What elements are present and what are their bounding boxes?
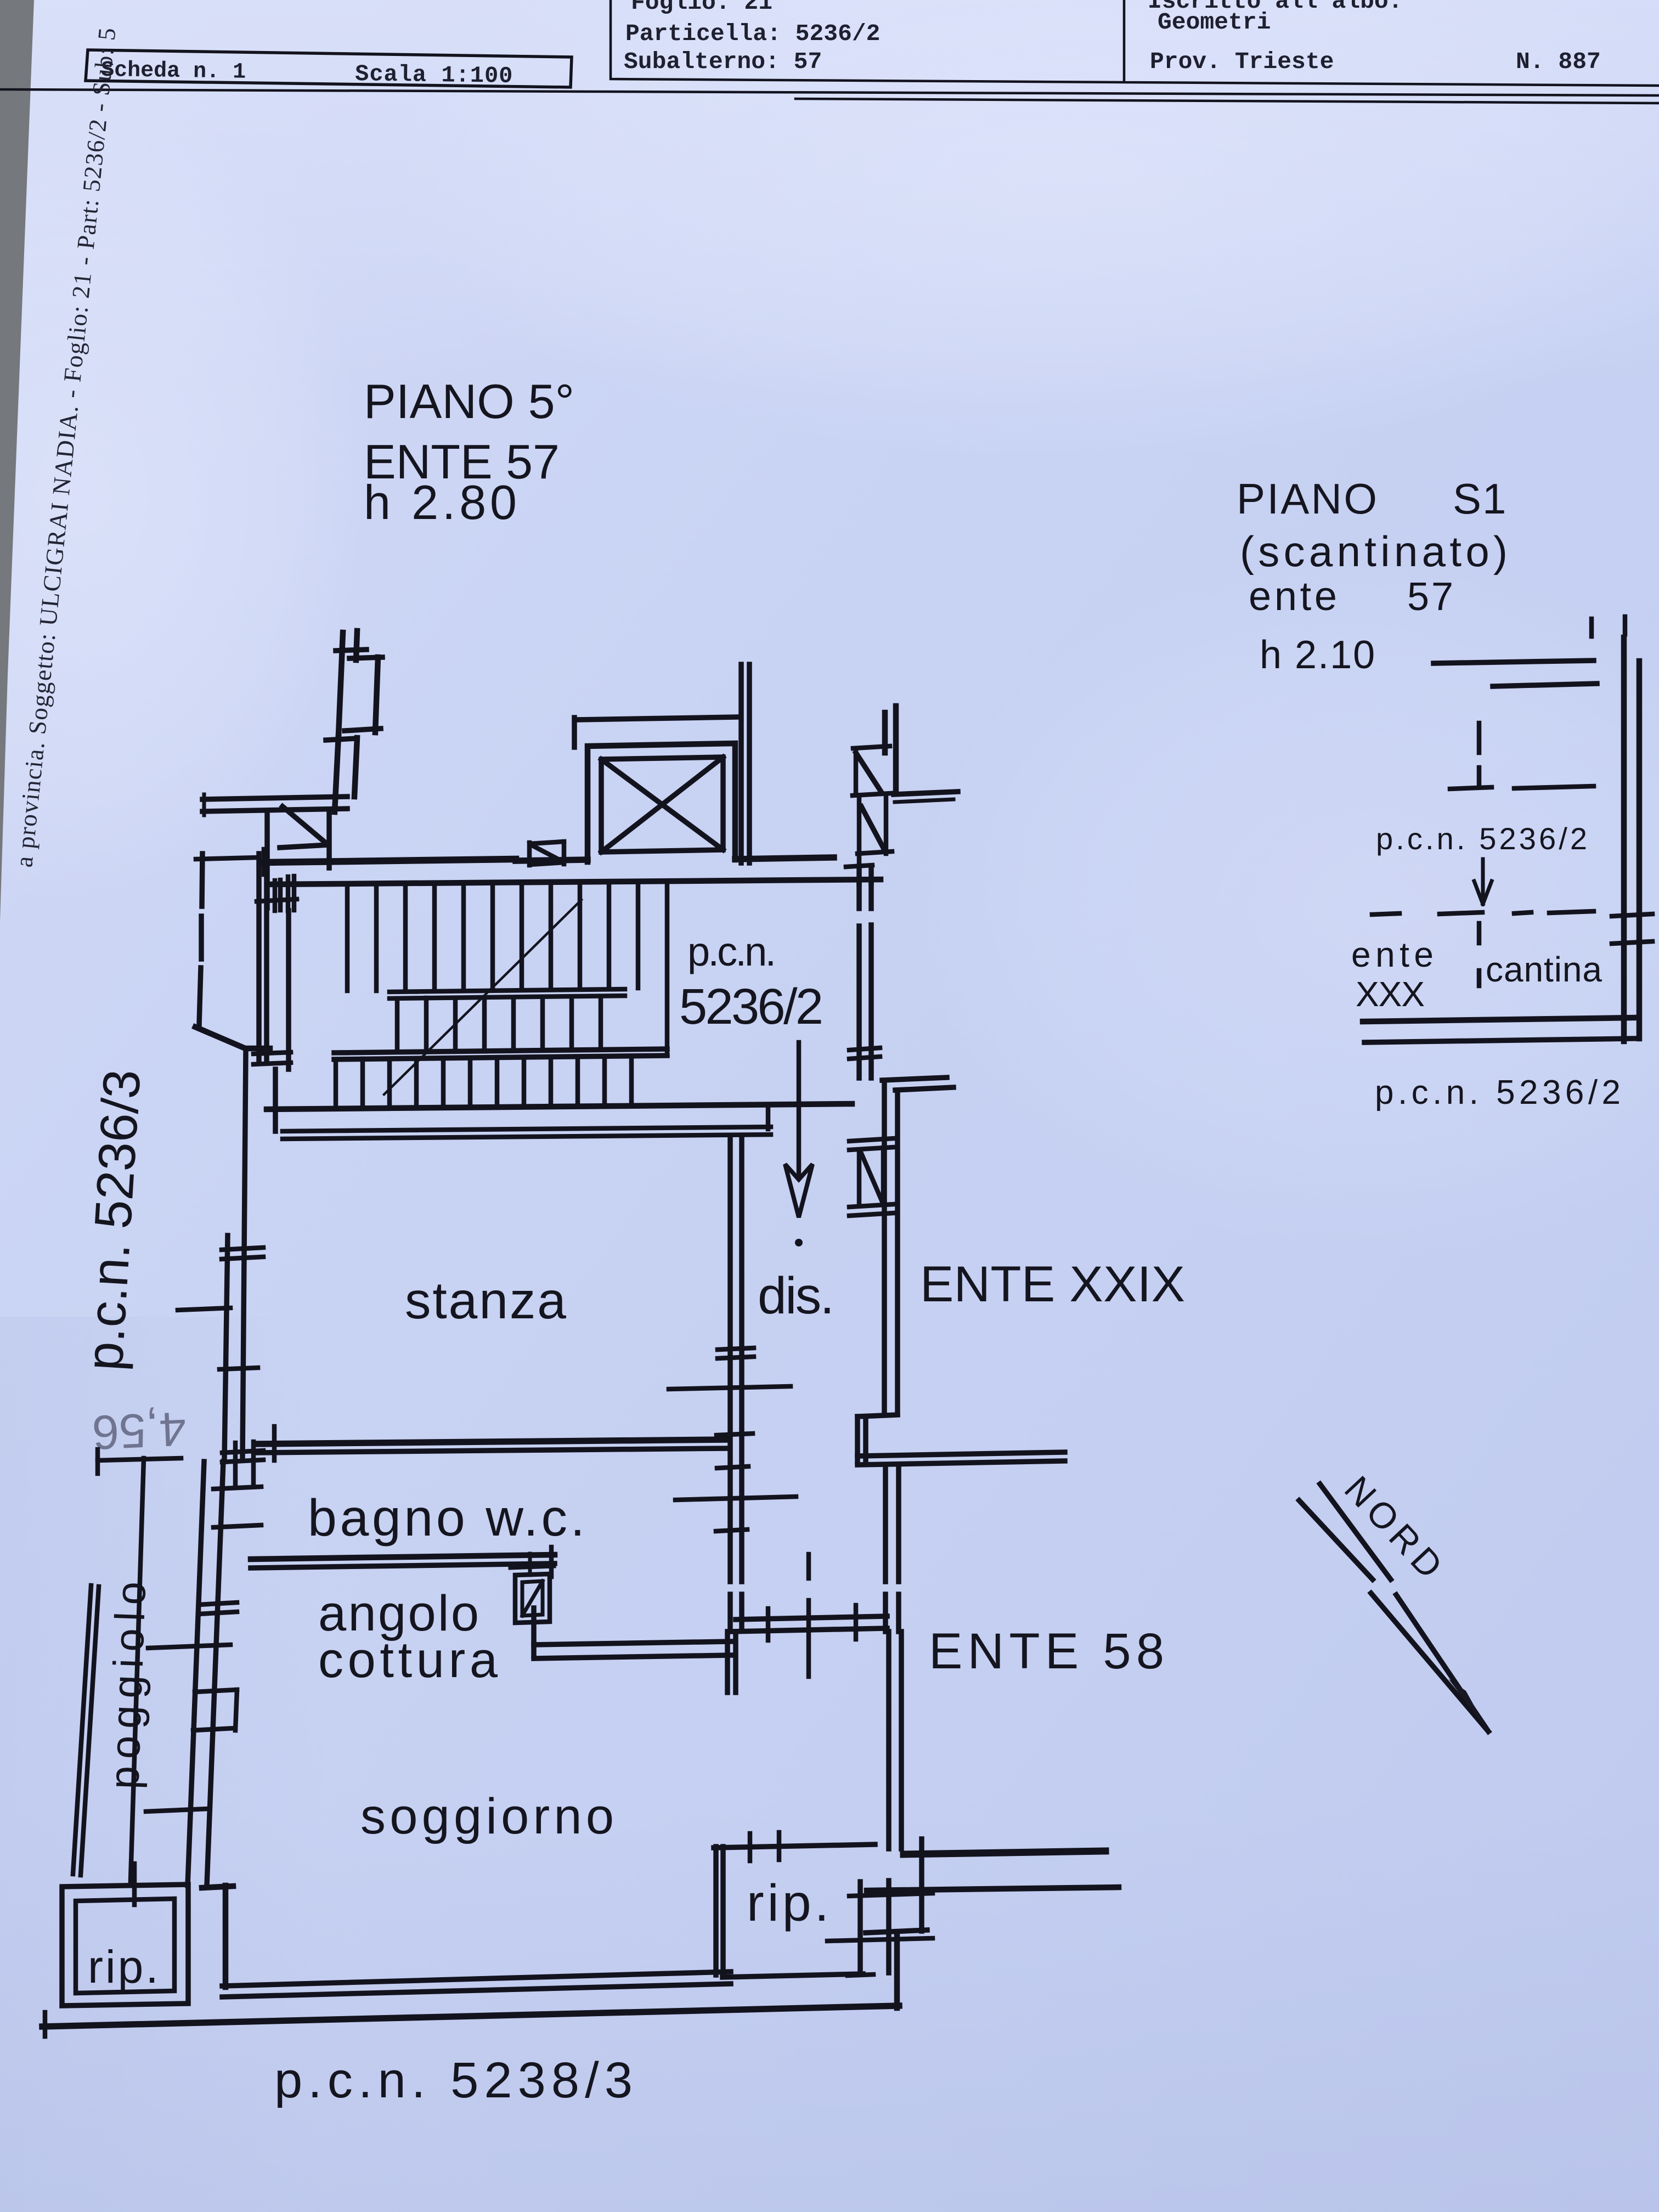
svg-text:Geometri: Geometri <box>1158 9 1271 36</box>
svg-text:(scantinato): (scantinato) <box>1240 527 1511 575</box>
svg-text:p.c.n. 5236/2: p.c.n. 5236/2 <box>1375 1074 1624 1111</box>
svg-text:Particella: 5236/2: Particella: 5236/2 <box>625 20 880 47</box>
svg-text:ENTE 58: ENTE 58 <box>929 1623 1170 1679</box>
svg-text:ente: ente <box>1249 573 1340 619</box>
svg-text:N. 887: N. 887 <box>1516 48 1601 75</box>
svg-text:h 2.10: h 2.10 <box>1260 633 1376 677</box>
svg-text:rip.: rip. <box>747 1874 832 1932</box>
svg-text:poggiolo: poggiolo <box>101 1573 155 1790</box>
svg-text:h 2.80: h 2.80 <box>364 475 520 529</box>
svg-text:p.c.n. 5238/3: p.c.n. 5238/3 <box>274 2052 638 2108</box>
svg-text:PIANO 5°: PIANO 5° <box>364 374 580 428</box>
svg-text:stanza: stanza <box>405 1272 571 1330</box>
svg-text:5236/2: 5236/2 <box>679 979 826 1035</box>
svg-text:bagno w.c.: bagno w.c. <box>308 1489 589 1547</box>
svg-text:rip.: rip. <box>88 1941 161 1993</box>
svg-text:Subalterno: 57: Subalterno: 57 <box>624 48 822 75</box>
svg-text:XXX: XXX <box>1356 974 1434 1014</box>
svg-text:Foglio: 21: Foglio: 21 <box>631 0 772 16</box>
svg-text:dis.: dis. <box>758 1267 838 1325</box>
svg-text:p.c.n.: p.c.n. <box>687 929 778 974</box>
svg-text:Scheda n. 1: Scheda n. 1 <box>101 58 246 85</box>
svg-text:p.c.n. 5236/2: p.c.n. 5236/2 <box>1376 821 1589 856</box>
svg-text:PIANO: PIANO <box>1237 475 1385 523</box>
svg-text:ENTE XXIX: ENTE XXIX <box>920 1256 1190 1312</box>
svg-text:Prov. Trieste: Prov. Trieste <box>1150 48 1334 75</box>
svg-text:Scala 1:100: Scala 1:100 <box>355 61 513 89</box>
svg-text:cantina: cantina <box>1486 950 1603 989</box>
svg-text:soggiorno: soggiorno <box>360 1788 618 1844</box>
svg-text:ente: ente <box>1351 935 1438 974</box>
svg-text:57: 57 <box>1407 575 1455 619</box>
svg-text:4,56: 4,56 <box>91 1402 187 1460</box>
svg-text:cottura: cottura <box>318 1632 502 1688</box>
svg-text:S1: S1 <box>1453 475 1507 523</box>
